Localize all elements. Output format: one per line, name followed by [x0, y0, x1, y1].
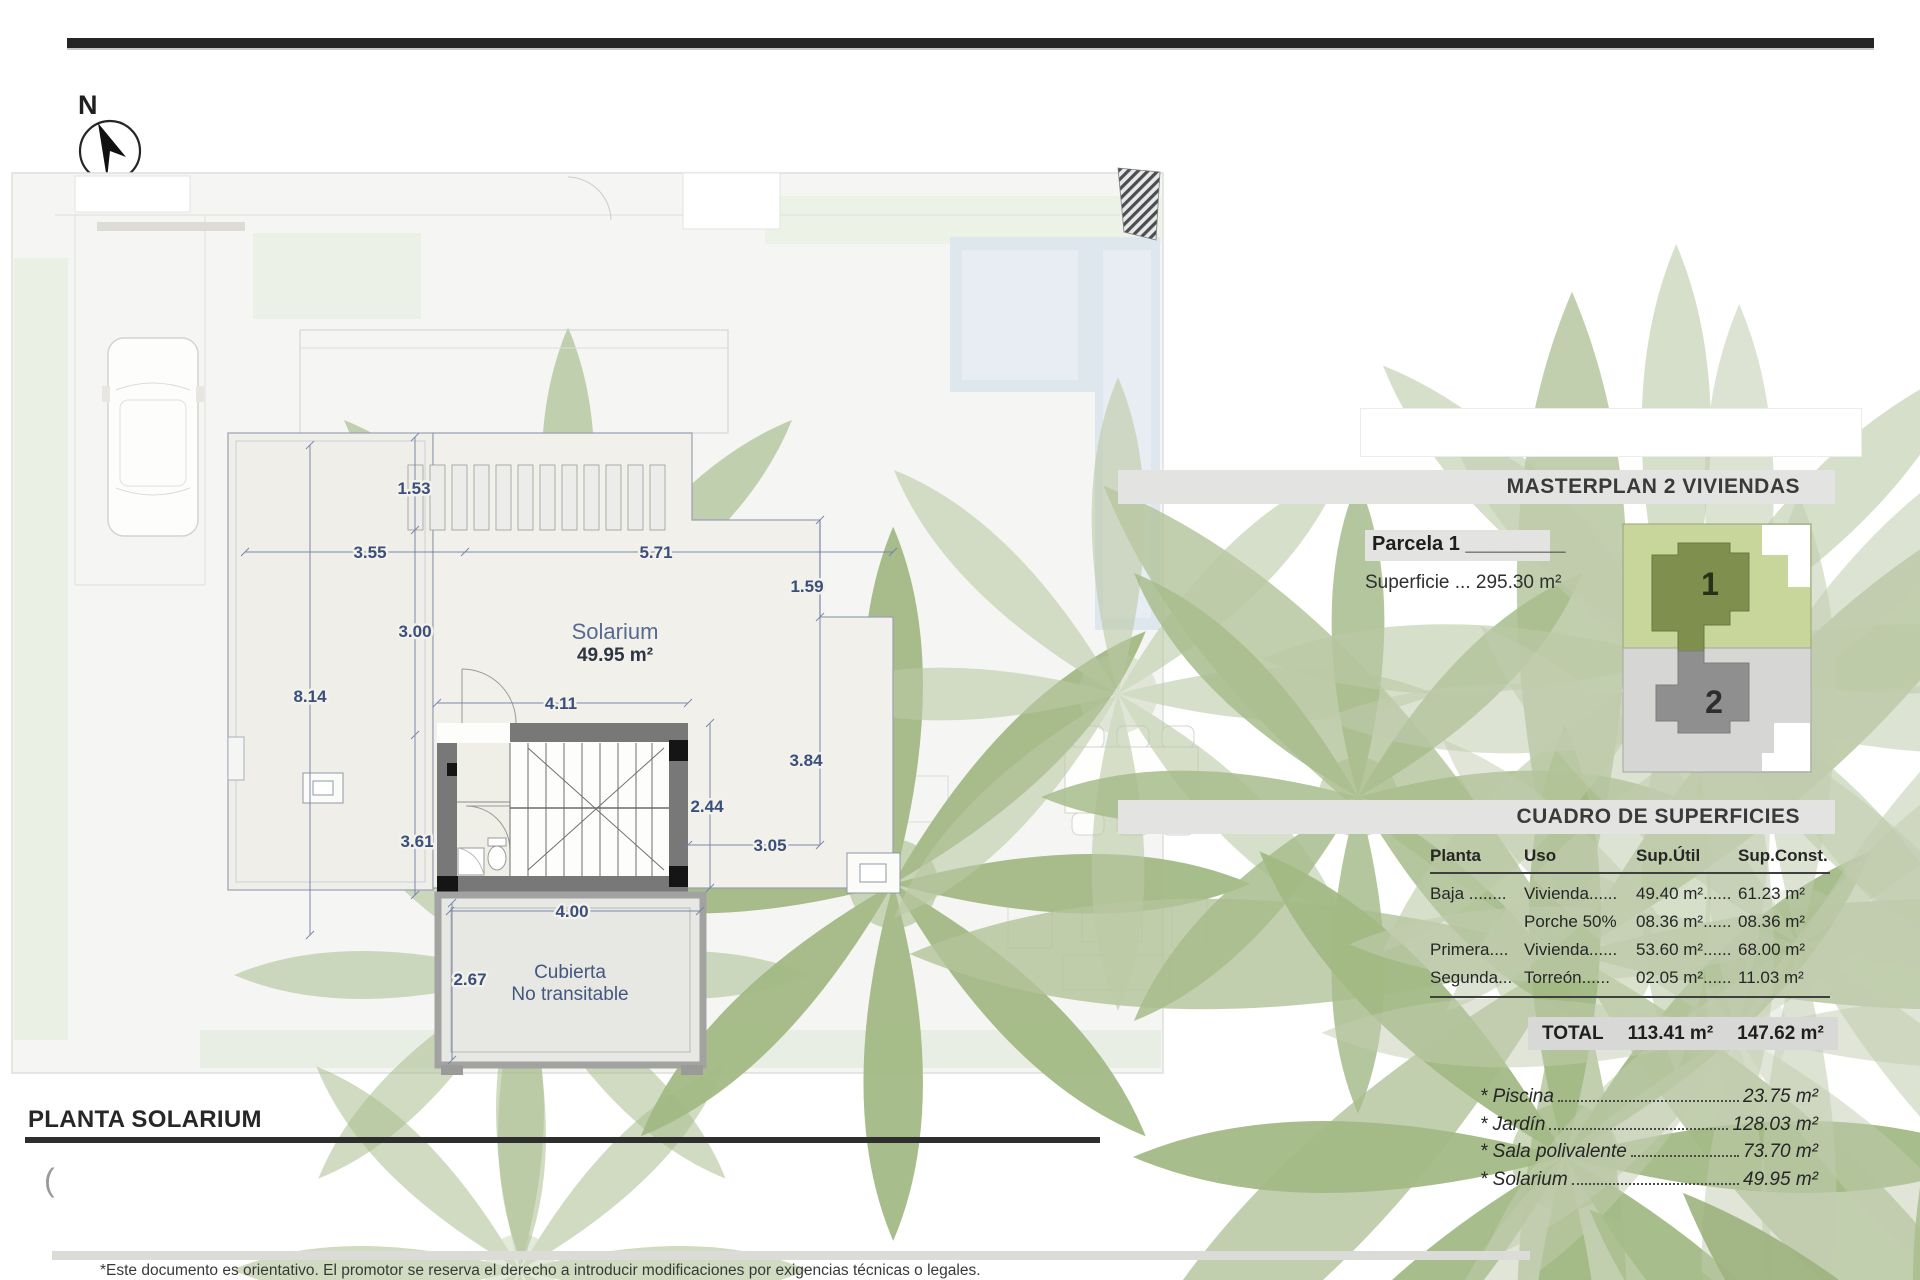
- extra-name: * Sala polivalente: [1480, 1141, 1627, 1163]
- page: N: [0, 0, 1920, 1280]
- entry-tab-2: [683, 173, 780, 229]
- table-row-cell: Primera....: [1430, 936, 1524, 964]
- list-item: * Jardín 128.03 m²: [1480, 1114, 1818, 1142]
- list-item: * Piscina 23.75 m²: [1480, 1086, 1818, 1114]
- solarium-area-label: 49.95 m²: [577, 645, 653, 666]
- table-row-cell: 08.36 m²......: [1636, 908, 1738, 936]
- table-row-cell: Segunda...: [1430, 964, 1524, 992]
- table-row-cell: 02.05 m²......: [1636, 964, 1738, 992]
- list-item: * Sala polivalente 73.70 m²: [1480, 1141, 1818, 1169]
- extra-value: 73.70 m²: [1743, 1141, 1818, 1163]
- cuadro-title: CUADRO DE SUPERFICIES: [1516, 805, 1800, 829]
- title-underline: [25, 1137, 1100, 1143]
- dim-label: 4.11: [545, 694, 577, 713]
- left-terrace: [228, 433, 433, 890]
- dim-label: 1.59: [790, 577, 823, 596]
- top-rule-bar: [67, 38, 1874, 50]
- dotted-leader: [1572, 1183, 1739, 1185]
- panel-empty-label-box: [1360, 408, 1862, 457]
- table-header-rule: [1430, 872, 1830, 874]
- total-util: 113.41 m²: [1628, 1023, 1714, 1045]
- table-row-cell: 08.36 m²: [1738, 908, 1830, 936]
- plot1-number: 1: [1701, 566, 1719, 602]
- extra-value: 128.03 m²: [1732, 1114, 1818, 1136]
- table-row-cell: 53.60 m²......: [1636, 936, 1738, 964]
- entry-tab: [75, 176, 190, 212]
- table-row-cell: Torreón......: [1524, 964, 1636, 992]
- total-label: TOTAL: [1542, 1023, 1604, 1045]
- parcela-line: Parcela 1 _________: [1372, 533, 1566, 556]
- dotted-leader: [1549, 1128, 1728, 1130]
- extra-value: 23.75 m²: [1743, 1086, 1818, 1108]
- superficie-label: Superficie ... 295.30 m²: [1365, 572, 1561, 594]
- table-row-cell: Vivienda......: [1524, 936, 1636, 964]
- list-item: * Solarium 49.95 m²: [1480, 1169, 1818, 1197]
- cubierta-label-line1: Cubierta: [534, 962, 606, 983]
- col-header-supconst: Sup.Const.: [1738, 846, 1830, 872]
- dim-label: 3.55: [353, 543, 386, 562]
- extra-name: * Jardín: [1480, 1114, 1545, 1136]
- page-title: PLANTA SOLARIUM: [28, 1106, 262, 1134]
- dotted-leader: [1558, 1100, 1739, 1102]
- cuadro-header-bar: CUADRO DE SUPERFICIES: [1118, 800, 1835, 834]
- total-const: 147.62 m²: [1737, 1023, 1824, 1045]
- dim-label: 3.00: [398, 622, 431, 641]
- compass-n-label: N: [78, 90, 98, 120]
- masterplan-title: MASTERPLAN 2 VIVIENDAS: [1507, 475, 1800, 499]
- table-row-cell: 68.00 m²: [1738, 936, 1830, 964]
- surfaces-table: Planta Uso Sup.Útil Sup.Const. Baja ....…: [1430, 846, 1830, 998]
- solarium-label: Solarium: [572, 619, 659, 644]
- dim-label: 4.00: [555, 902, 588, 921]
- dim-label: 8.14: [293, 687, 327, 706]
- col-header-planta: Planta: [1430, 846, 1524, 872]
- extra-name: * Piscina: [1480, 1086, 1554, 1108]
- dim-label: 2.44: [690, 797, 724, 816]
- dim-label: 3.61: [400, 832, 433, 851]
- table-row-cell: [1430, 908, 1524, 936]
- dim-label: 5.71: [639, 543, 672, 562]
- table-row-cell: Porche 50%: [1524, 908, 1636, 936]
- masterplan-header-bar: MASTERPLAN 2 VIVIENDAS: [1118, 470, 1835, 504]
- north-compass-icon: N: [78, 90, 140, 181]
- footer-disclaimer: *Este documento es orientativo. El promo…: [100, 1262, 981, 1280]
- dim-label: 3.05: [753, 836, 786, 855]
- plot2-number: 2: [1705, 684, 1723, 720]
- footer-rule: [52, 1251, 1530, 1260]
- dotted-leader: [1631, 1155, 1739, 1157]
- table-row-cell: 11.03 m²: [1738, 964, 1830, 992]
- dim-label: 2.67: [453, 970, 486, 989]
- gate-line: [97, 222, 245, 231]
- table-row-cell: Baja ........: [1430, 880, 1524, 908]
- col-header-uso: Uso: [1524, 846, 1636, 872]
- extra-value: 49.95 m²: [1743, 1169, 1818, 1191]
- car-outline: [102, 338, 204, 536]
- table-row-cell: 61.23 m²: [1738, 880, 1830, 908]
- masterplan-diagram: 1 2: [1622, 523, 1812, 773]
- dim-label: 1.53: [397, 479, 430, 498]
- parcela-label: Parcela 1: [1372, 533, 1460, 555]
- table-row-cell: 49.40 m²......: [1636, 880, 1738, 908]
- hatched-corner: [1118, 168, 1160, 240]
- col-header-suputil: Sup.Útil: [1636, 846, 1738, 872]
- total-bar: TOTAL 113.41 m² 147.62 m²: [1528, 1017, 1838, 1050]
- bracket-artifact: (: [44, 1162, 55, 1199]
- table-footer-rule: [1430, 996, 1830, 998]
- parcela-underscore: _________: [1460, 533, 1566, 555]
- table-row-cell: Vivienda......: [1524, 880, 1636, 908]
- dim-label: 3.84: [789, 751, 823, 770]
- extras-list: * Piscina 23.75 m² * Jardín 128.03 m² * …: [1480, 1086, 1818, 1196]
- extra-name: * Solarium: [1480, 1169, 1568, 1191]
- cubierta-label-line2: No transitable: [511, 984, 628, 1005]
